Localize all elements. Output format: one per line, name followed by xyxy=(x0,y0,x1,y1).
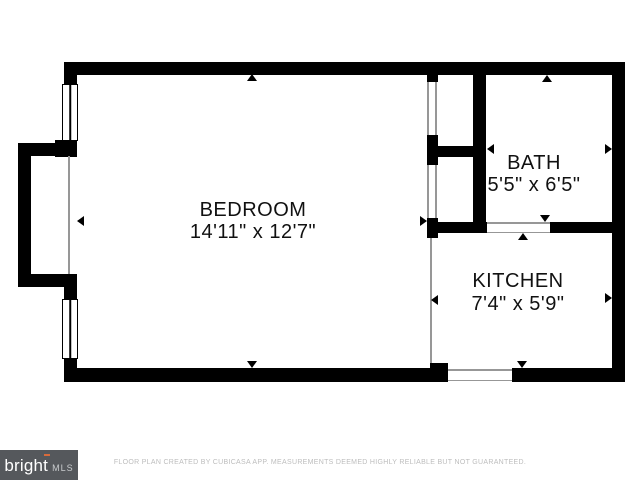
closet-stub-top xyxy=(427,75,438,82)
bath-measure-arrow-up xyxy=(542,75,552,82)
kitchen-dimensions: 7'4" x 5'9" xyxy=(428,293,608,316)
closet-opening-upper-line-a xyxy=(427,82,429,135)
alcove-opening-line xyxy=(68,156,70,274)
entry-stub xyxy=(430,363,448,369)
closet-opening-lower-line-a xyxy=(427,165,429,218)
window-lower-left xyxy=(62,299,78,359)
disclaimer-text: FLOOR PLAN CREATED BY CUBICASA APP. MEAS… xyxy=(0,459,640,466)
bath-label: BATH 5'5" x 6'5" xyxy=(464,152,604,196)
divider-wall-right xyxy=(550,222,612,233)
bath-dimensions: 5'5" x 6'5" xyxy=(464,174,604,196)
window-upper-left xyxy=(62,84,78,141)
wall-bottom-left xyxy=(64,368,448,382)
divider-wall-left xyxy=(436,222,487,233)
bedroom-measure-arrow-right xyxy=(420,216,427,226)
bath-measure-arrow-down xyxy=(540,215,550,222)
bedroom-measure-arrow-up xyxy=(247,74,257,81)
wall-right xyxy=(612,62,625,382)
wall-left-lower xyxy=(64,355,77,382)
logo-accent-mark xyxy=(44,454,50,457)
bath-name: BATH xyxy=(507,152,561,174)
bedroom-dimensions: 14'11" x 12'7" xyxy=(113,221,393,243)
kitchen-measure-arrow-down xyxy=(517,361,527,368)
closet-opening-lower-line-b xyxy=(435,165,437,218)
bedroom-measure-arrow-down xyxy=(247,361,257,368)
bedroom-label: BEDROOM 14'11" x 12'7" xyxy=(113,199,393,243)
bedroom-measure-arrow-left xyxy=(77,216,84,226)
kitchen-name: KITCHEN xyxy=(472,270,563,292)
alcove-wall-left xyxy=(18,143,31,287)
kitchen-label: KITCHEN 7'4" x 5'9" xyxy=(428,270,608,316)
window-pane-line xyxy=(69,85,71,140)
entry-door-line-bottom xyxy=(448,380,512,382)
kitchen-measure-arrow-up xyxy=(518,233,528,240)
wall-top xyxy=(65,62,625,75)
entry-door-line-top xyxy=(448,369,512,371)
bath-door-line-top xyxy=(487,222,550,224)
bath-measure-arrow-right xyxy=(605,144,612,154)
alcove-wall-bottom xyxy=(18,274,77,287)
floor-plan: BEDROOM 14'11" x 12'7" BATH 5'5" x 6'5" … xyxy=(0,0,640,480)
closet-opening-upper-line-b xyxy=(435,82,437,135)
window-pane-line xyxy=(69,300,71,358)
wall-bottom-right xyxy=(512,368,625,382)
bedroom-name: BEDROOM xyxy=(200,199,307,221)
